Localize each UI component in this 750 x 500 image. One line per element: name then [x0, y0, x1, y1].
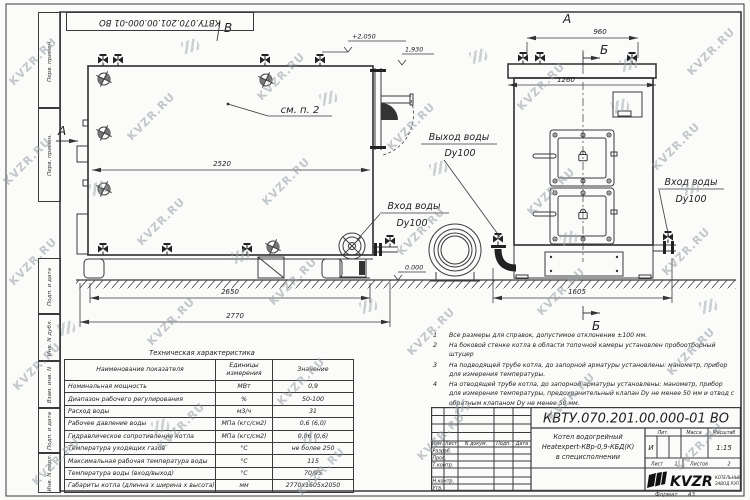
dim-2520: 2520 — [213, 160, 231, 168]
sheets-value: 2 — [727, 462, 730, 468]
sheet-value: 1 — [674, 462, 677, 468]
frame-box-inv-dubl: Инв. N дубл. — [38, 313, 61, 362]
note-number: 4 — [433, 380, 449, 408]
dim-1260: 1260 — [557, 76, 575, 84]
col-header-list: Лист — [444, 441, 457, 447]
note-number: 3 — [433, 361, 449, 379]
col-header-podp: Подп. — [496, 441, 511, 447]
side-stub-valve — [373, 236, 398, 256]
spec-cell: Температура воды (вход/выход) — [65, 467, 216, 479]
spec-cell: 0,9 — [273, 381, 354, 393]
table-row: Номинальная мощностьМВт0,9 — [65, 381, 354, 393]
note-text: На отводящей трубе котла, до запорной ар… — [449, 380, 736, 408]
spec-cell: °С — [216, 442, 273, 454]
spec-cell: 0,6 (6,0) — [273, 418, 354, 430]
frame-box-label: Взам. инв. N — [47, 366, 53, 402]
table-row: Температура уходящих газов°Сне более 250 — [65, 442, 354, 454]
notes-list: 1Все размеры для справок, допустимое отк… — [433, 331, 736, 409]
front-base — [514, 245, 653, 279]
callout-see-item: см. п. 2 — [281, 105, 320, 116]
dim-2650: 2650 — [221, 288, 239, 296]
row-label-tkontr: Т.контр. — [433, 462, 454, 468]
list-item: 1Все размеры для справок, допустимое отк… — [433, 331, 736, 340]
note-text: Все размеры для справок, допустимое откл… — [449, 331, 647, 340]
revision-grid: Изм. Лист N докум. Подп. Дата Разраб. Пр… — [431, 407, 531, 491]
boiler-side-view — [77, 55, 414, 278]
table-row: Рабочее давление водыМПа (кгс/см2)0,6 (6… — [65, 418, 354, 430]
table-row: Габариты котла (длинна х ширина х высота… — [65, 480, 354, 492]
front-right-valve — [653, 232, 676, 254]
product-title-line1: Котел водогрейный — [553, 433, 623, 441]
spec-cell: МПа (кгс/см2) — [216, 418, 273, 430]
furnace-door-upper — [533, 130, 617, 186]
note-number: 1 — [433, 331, 449, 340]
spec-cell: 31 — [273, 405, 354, 417]
table-row: Температура воды (вход/выход)°С70/95 — [65, 467, 354, 479]
company-line1: КОТЕЛЬНЫЙ — [715, 475, 741, 480]
spec-cell: °С — [216, 455, 273, 467]
panel-box — [613, 92, 642, 117]
callout-outlet-line1: Выход воды — [429, 132, 490, 143]
technical-characteristics: Техническая характеристика Наименование … — [64, 349, 340, 493]
view-label-a-front: А — [562, 12, 571, 26]
dim-2770: 2770 — [226, 312, 244, 320]
col-header-izm: Изм. — [432, 441, 443, 447]
callouts: см. п. 2 Выход воды Dy100 Вход воды Dy10… — [227, 103, 724, 240]
spec-cell: МВт — [216, 381, 273, 393]
spec-cell: % — [216, 393, 273, 405]
row-label-razrab: Разраб. — [433, 448, 452, 454]
spec-cell: 70/95 — [273, 467, 354, 479]
elevation-ground: 0.000 — [405, 264, 423, 272]
row-label-prov: Пров. — [433, 455, 447, 461]
spec-cell: 0,06 (0,6) — [273, 430, 354, 442]
sheets-label: Листов — [689, 462, 708, 468]
outlet-pipe — [370, 68, 414, 155]
mass-label: Масса — [686, 430, 701, 436]
format-value: А3 — [688, 492, 695, 498]
frame-box-podp-data-2: Подп. и дата — [38, 407, 61, 454]
col-header-ndokum: N докум. — [465, 441, 487, 447]
callout-inlet-side-line1: Вход воды — [387, 201, 441, 212]
spec-table: Наименование показателя Единицы измерени… — [64, 359, 354, 493]
product-title: Котел водогрейный Heatexpert-КВр-0,9-КБД… — [542, 433, 634, 461]
elevation-top: +2,050 — [352, 33, 376, 41]
list-item: 3На подводящей трубе котла, до запорной … — [433, 361, 736, 379]
spec-cell: Габариты котла (длинна х ширина х высота… — [65, 480, 216, 492]
callout-inlet-side-line2: Dy100 — [396, 218, 427, 229]
skid-hatch-box — [258, 257, 284, 278]
frame-box-perv-primen-2: Перв. примен. — [38, 107, 61, 202]
callout-inlet-right-line2: Dy100 — [675, 194, 706, 205]
spec-header-name: Наименование показателя — [65, 360, 216, 381]
frame-box-label: Инв. N подл. — [47, 454, 53, 491]
spec-cell: Температура уходящих газов — [65, 442, 216, 454]
company-line2: ЗАВОД РЭП — [715, 481, 739, 486]
frame-box-vzam-inv: Взам. инв. N — [38, 360, 61, 409]
spec-cell: Расход воды — [65, 405, 216, 417]
spec-cell: 50-100 — [273, 393, 354, 405]
top-stamp-doc-number: КВТУ.070.201.00.000-01 ВО — [99, 17, 221, 27]
table-row: Диапазон рабочего регулирования%50-100 — [65, 393, 354, 405]
lit-label: Лит. — [656, 430, 668, 436]
drawing-sheet: { "watermark": { "text": "KVZR.RU" }, "t… — [0, 0, 750, 500]
row-label-nkontr: Н.контр. — [433, 478, 454, 484]
callout-inlet-right-line1: Вход воды — [664, 177, 718, 188]
note-text: На боковой стенке котла в области топочн… — [449, 341, 736, 359]
frame-box-inv-podl: Инв. N подл. — [38, 452, 61, 493]
frame-box-label: Перв. примен. — [47, 134, 53, 176]
kvzr-logo-icon — [647, 472, 667, 489]
note-text: На подводящей трубе котла, до запорной а… — [449, 361, 736, 379]
spec-cell: м3/ч — [216, 405, 273, 417]
product-title-line2: Heatexpert-КВр-0,9-КБД(К) — [542, 443, 634, 451]
spec-header-units: Единицы измерения — [216, 360, 273, 381]
furnace-door-lower — [533, 188, 617, 244]
list-item: 2На боковой стенке котла в области топоч… — [433, 341, 736, 359]
format-label: ФорматА3 — [655, 492, 705, 498]
note-number: 2 — [433, 341, 449, 359]
frame-box-label: Подп. и дата — [47, 267, 53, 305]
spec-cell: 115 — [273, 455, 354, 467]
frame-box-podp-data-1: Подп. и дата — [38, 258, 61, 315]
door-handle — [533, 212, 556, 216]
scale-value: 1:15 — [716, 444, 732, 452]
company-logo-area: KVZR КОТЕЛЬНЫЙ ЗАВОД РЭП — [647, 472, 741, 491]
title-block: Изм. Лист N докум. Подп. Дата Разраб. Пр… — [431, 407, 741, 491]
frame-box-label: Подп. и дата — [47, 411, 53, 449]
frame-box-label: Перв. примен. — [47, 40, 53, 82]
frame-box-perv-primen-1: Перв. примен. — [38, 12, 61, 109]
sheet-label: Лист — [650, 462, 663, 468]
ground-line — [76, 280, 736, 289]
spec-cell: не более 250 — [273, 442, 354, 454]
table-row: Расход водым3/ч31 — [65, 405, 354, 417]
blower-fan — [429, 224, 481, 281]
spec-cell: 2770х1605х2050 — [273, 480, 354, 492]
spec-cell: °С — [216, 467, 273, 479]
spec-cell: Гидравлическое сопротивление котла — [65, 430, 216, 442]
spec-cell: мм — [216, 480, 273, 492]
doc-number: КВТУ.070.201.00.000-01 ВО — [543, 412, 729, 427]
format-word: Формат — [655, 492, 678, 498]
dim-1605: 1605 — [568, 288, 586, 296]
product-title-line3: в специсполнении — [556, 453, 621, 461]
row-label-utv: Утв. — [433, 485, 443, 491]
company-logo-text: KVZR — [670, 474, 713, 490]
top-corner-stamp: КВТУ.070.201.00.000-01 ВО — [66, 12, 254, 31]
scale-label: Масштаб — [713, 430, 736, 436]
spec-header-value: Значение — [273, 360, 354, 381]
section-label-b-top: Б — [600, 43, 608, 57]
frame-box-label: Инв. N дубл. — [47, 319, 53, 356]
spec-table-title: Техническая характеристика — [64, 349, 340, 357]
door-handle — [533, 154, 556, 158]
col-header-data: Дата — [515, 441, 528, 447]
table-row: Гидравлическое сопротивление котлаМПа (к… — [65, 430, 354, 442]
spec-header-row: Наименование показателя Единицы измерени… — [65, 360, 354, 381]
dim-960: 960 — [593, 28, 607, 36]
list-item: 4На отводящей трубе котла, до запорной а… — [433, 380, 736, 408]
front-left-valve — [491, 234, 516, 268]
callout-outlet-line2: Dy100 — [444, 148, 475, 159]
spec-cell: МПа (кгс/см2) — [216, 430, 273, 442]
lit-value: И — [648, 444, 654, 452]
table-row: Максимальная рабочая температура воды°С1… — [65, 455, 354, 467]
spec-cell: Максимальная рабочая температура воды — [65, 455, 216, 467]
spec-cell: Диапазон рабочего регулирования — [65, 393, 216, 405]
spec-cell: Номинальная мощность — [65, 381, 216, 393]
spec-cell: Рабочее давление воды — [65, 418, 216, 430]
elevation-outlet: 1,930 — [405, 46, 423, 54]
